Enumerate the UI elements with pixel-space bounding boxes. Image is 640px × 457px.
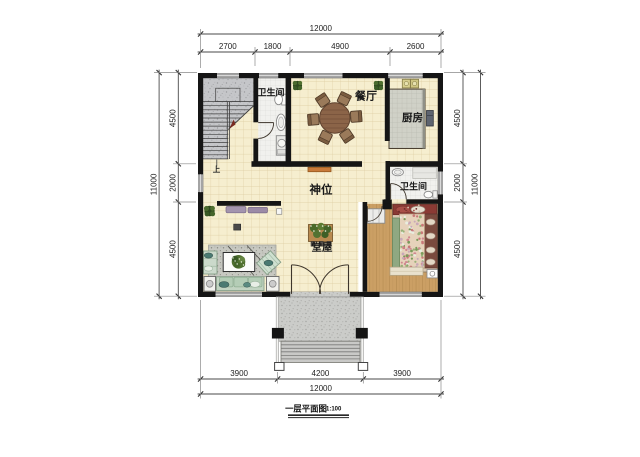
svg-text:4500: 4500: [453, 240, 462, 258]
svg-text:3900: 3900: [230, 369, 248, 378]
svg-text:卫生间: 卫生间: [257, 87, 284, 98]
svg-text:2000: 2000: [169, 173, 178, 191]
svg-text:神位: 神位: [310, 183, 333, 197]
svg-text:2600: 2600: [407, 42, 425, 51]
svg-text:3900: 3900: [393, 369, 411, 378]
svg-text:1800: 1800: [264, 42, 282, 51]
svg-text:餐厅: 餐厅: [354, 89, 377, 103]
svg-text:上: 上: [213, 164, 221, 174]
svg-text:4500: 4500: [169, 240, 178, 258]
svg-text:4500: 4500: [453, 109, 462, 127]
svg-text:12000: 12000: [310, 24, 333, 33]
svg-text:12000: 12000: [310, 384, 333, 393]
svg-text:2000: 2000: [453, 173, 462, 191]
svg-text:4500: 4500: [169, 109, 178, 127]
svg-text:一层平面图: 一层平面图: [285, 404, 327, 414]
svg-text:卫生间: 卫生间: [400, 181, 427, 192]
svg-text:4900: 4900: [331, 42, 349, 51]
svg-text:11000: 11000: [471, 173, 480, 195]
svg-text:4200: 4200: [312, 369, 330, 378]
svg-text:厨房: 厨房: [402, 111, 423, 124]
svg-text:2700: 2700: [219, 42, 237, 51]
svg-text:1:100: 1:100: [326, 406, 342, 412]
svg-text:11000: 11000: [149, 173, 158, 195]
svg-text:堂屋: 堂屋: [312, 241, 333, 254]
